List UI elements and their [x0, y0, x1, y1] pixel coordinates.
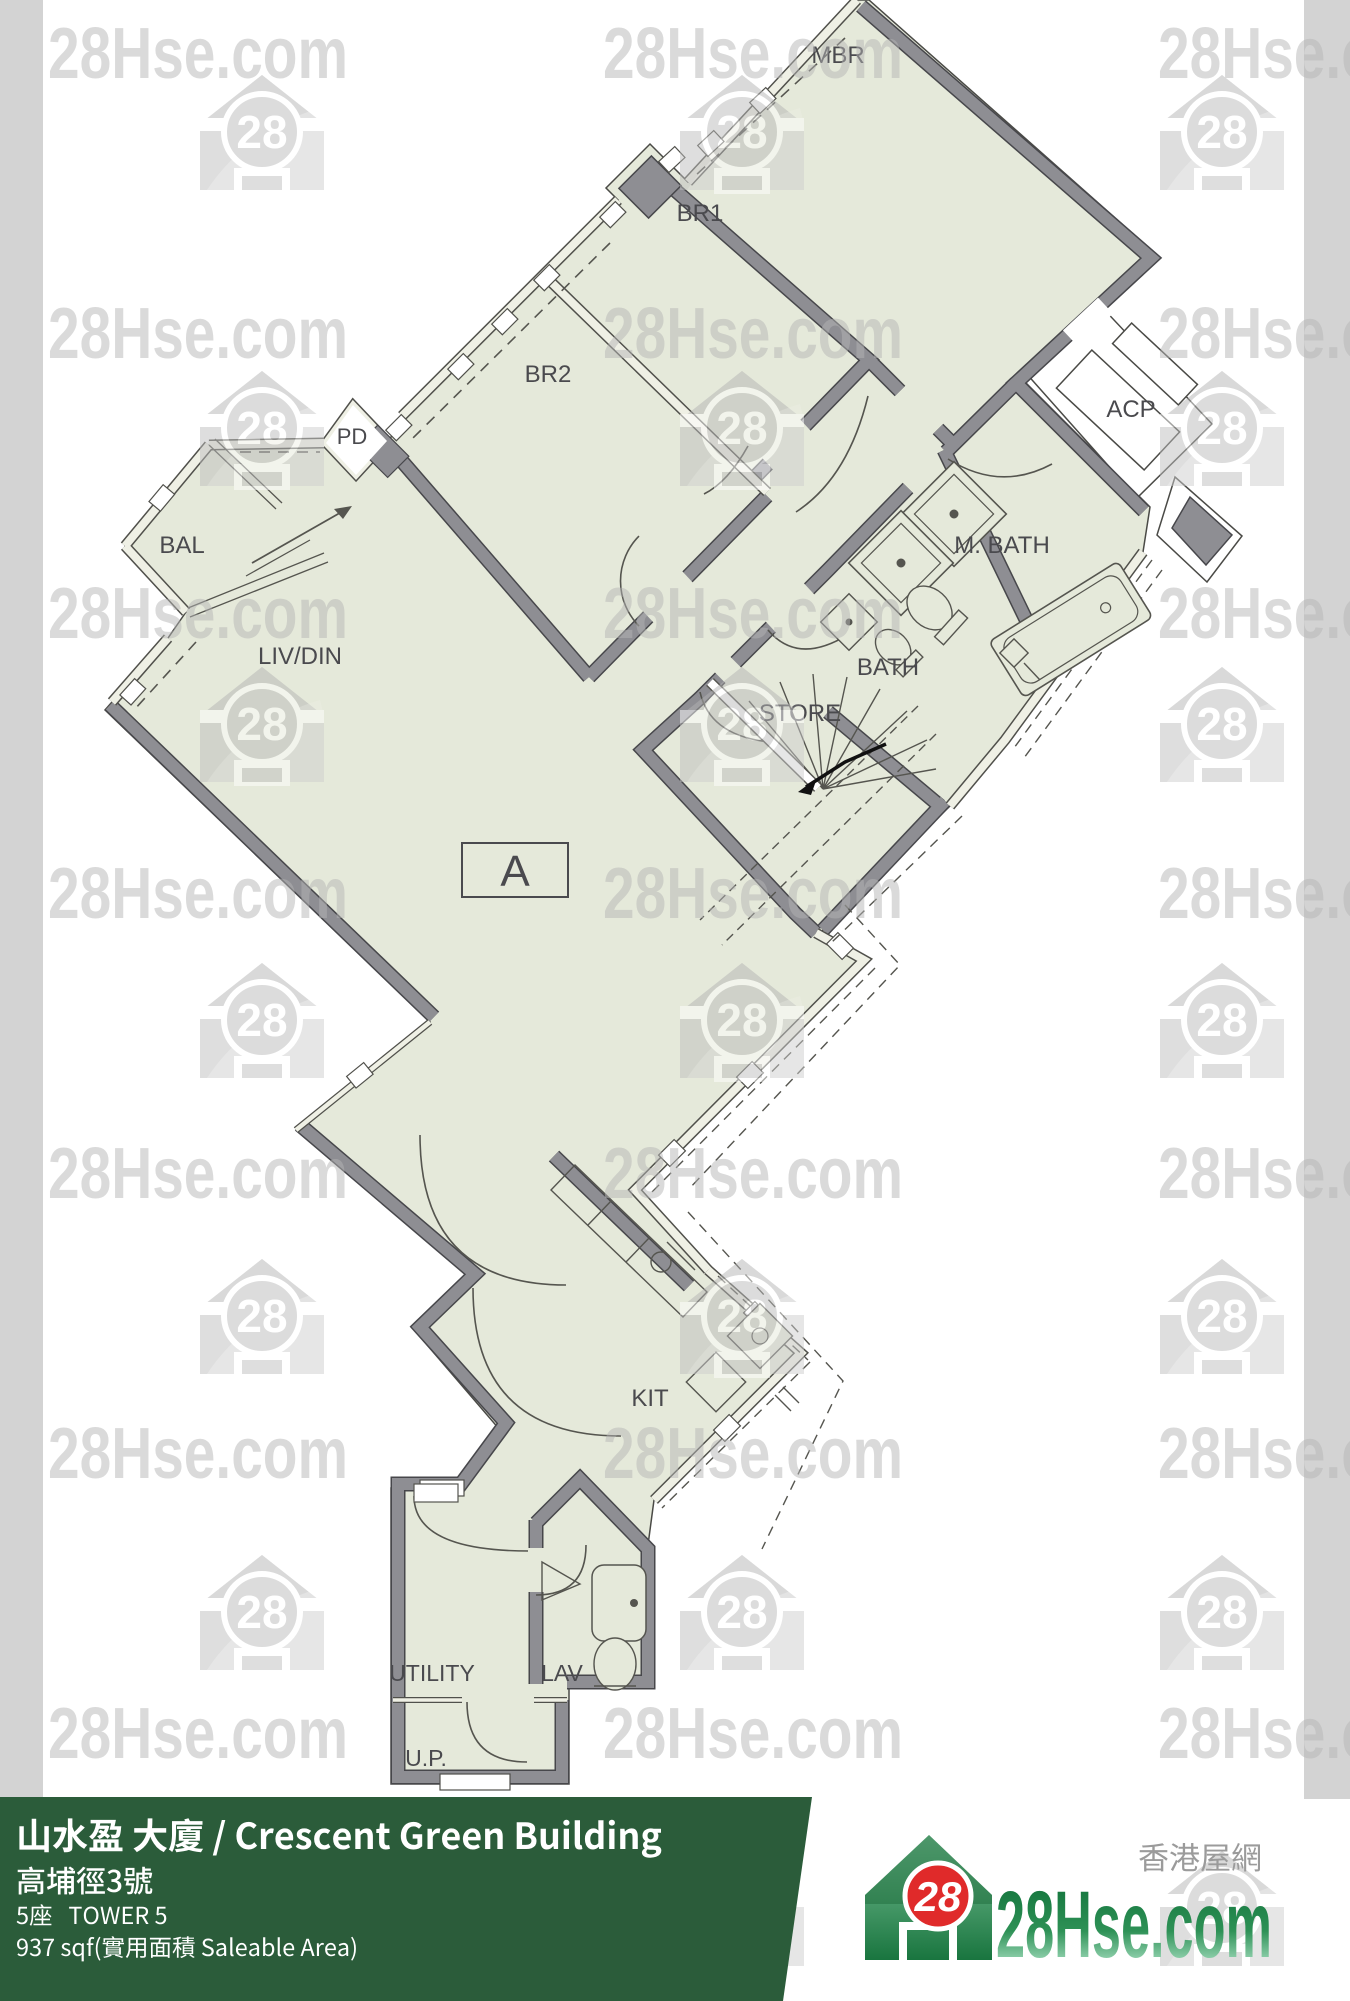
svg-text:28Hse.com: 28Hse.com [996, 1872, 1272, 1978]
svg-text:28: 28 [914, 1873, 962, 1920]
svg-text:ACP: ACP [1106, 396, 1155, 423]
svg-text:PD: PD [337, 424, 368, 449]
svg-text:BR2: BR2 [525, 361, 572, 388]
svg-text:BR1: BR1 [677, 200, 724, 227]
svg-text:LAV: LAV [541, 1660, 583, 1686]
svg-text:BATH: BATH [857, 654, 919, 681]
svg-text:UTILITY: UTILITY [389, 1660, 475, 1686]
svg-text:M. BATH: M. BATH [954, 532, 1050, 559]
svg-text:U.P.: U.P. [405, 1745, 447, 1771]
svg-text:KIT: KIT [631, 1385, 669, 1412]
svg-text:A: A [500, 847, 530, 896]
svg-text:BAL: BAL [159, 532, 204, 559]
